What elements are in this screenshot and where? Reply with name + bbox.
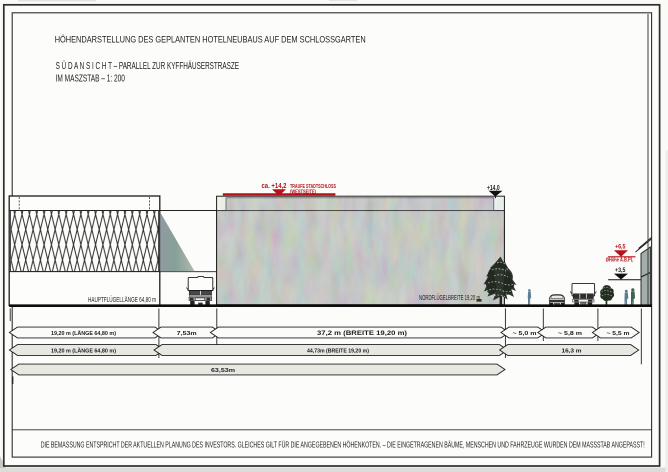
- svg-text:HAUPTFLÜGELLÄNGE 64,80 m: HAUPTFLÜGELLÄNGE 64,80 m: [88, 295, 156, 304]
- svg-text:+14,0: +14,0: [487, 183, 500, 192]
- svg-text:DIE BEMASSUNG ENTSPRICHT DER A: DIE BEMASSUNG ENTSPRICHT DER AKTUELLEN P…: [41, 440, 645, 450]
- svg-text:7,53m: 7,53m: [177, 331, 197, 337]
- svg-text:37,2 m (BREITE 19,20 m): 37,2 m (BREITE 19,20 m): [317, 330, 407, 337]
- svg-text:63,53m: 63,53m: [211, 368, 235, 374]
- svg-text:IM MASZSTAB – 1: 200: IM MASZSTAB – 1: 200: [56, 73, 125, 84]
- svg-text:HÖHENDARSTELLUNG DES GEPLANTEN: HÖHENDARSTELLUNG DES GEPLANTEN HOTELNEUB…: [55, 33, 366, 44]
- svg-text:~ 5,5 m: ~ 5,5 m: [607, 331, 630, 337]
- svg-text:ØHöhe A.B.PL: ØHöhe A.B.PL: [606, 258, 634, 264]
- svg-text:NORDFLÜGELBREITE 19,20 m: NORDFLÜGELBREITE 19,20 m: [419, 293, 480, 302]
- svg-text:+6,5: +6,5: [615, 243, 626, 250]
- svg-text:~ 5,8 m: ~ 5,8 m: [558, 331, 582, 337]
- svg-text:(WESTSEITE): (WESTSEITE): [290, 190, 316, 196]
- svg-text:ca. +14,2: ca. +14,2: [262, 183, 287, 190]
- svg-text:~ 5,0 m: ~ 5,0 m: [513, 331, 537, 337]
- svg-text:16,3 m: 16,3 m: [562, 348, 582, 354]
- svg-text:19,20 m (LÄNGE 64,80 m): 19,20 m (LÄNGE 64,80 m): [51, 347, 116, 354]
- svg-text:+3,5: +3,5: [615, 267, 626, 274]
- svg-text:44,73m (BREITE 19,20 m): 44,73m (BREITE 19,20 m): [307, 348, 369, 354]
- svg-text:S Ü D A N S I C H T – PARALLEL: S Ü D A N S I C H T – PARALLEL ZUR KYFFH…: [56, 60, 239, 72]
- svg-text:19,20 m (LÄNGE 64,80 m): 19,20 m (LÄNGE 64,80 m): [51, 330, 116, 337]
